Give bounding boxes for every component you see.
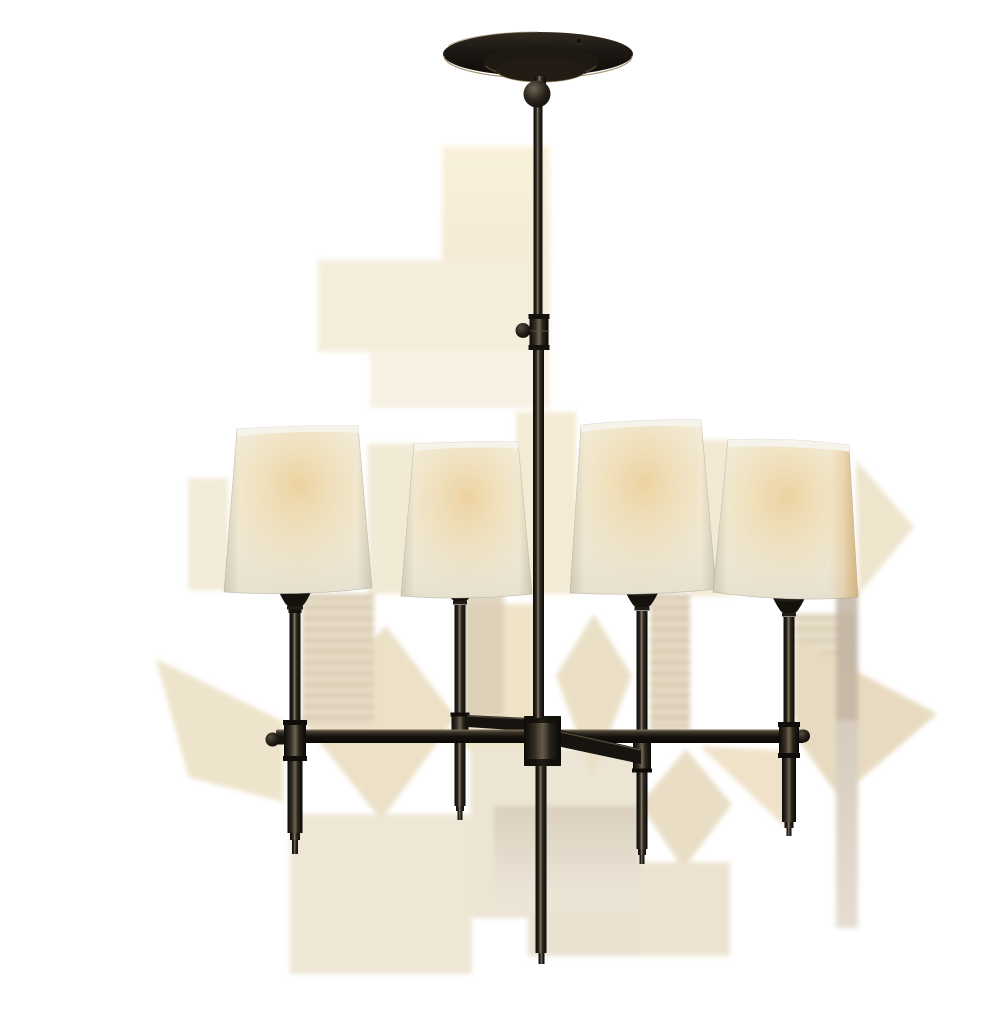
ceiling-canopy <box>443 32 633 108</box>
arm-collar <box>284 720 306 761</box>
cup-flange <box>782 613 796 617</box>
coupler-thumbscrew <box>516 323 531 338</box>
cup-flange <box>635 607 650 611</box>
coupler-flange <box>529 345 550 350</box>
chandelier <box>40 16 1000 1016</box>
thumbscrew-knob-left <box>266 733 280 747</box>
hub-flange <box>524 759 561 766</box>
canopy-screw <box>576 38 582 44</box>
candle-stem <box>784 617 795 723</box>
cup-flange <box>289 610 302 614</box>
arm-collar <box>779 722 799 758</box>
mid-stem <box>533 350 544 718</box>
finial-step <box>638 849 646 855</box>
shade-edge-shading <box>401 442 532 598</box>
lamp-shade-4 <box>713 439 858 599</box>
finial-drop <box>292 840 298 854</box>
center-hub <box>524 716 561 766</box>
collar-flange <box>632 769 652 773</box>
finial-drop <box>640 855 645 864</box>
collar-flange <box>778 722 800 727</box>
cup-flange <box>287 606 303 610</box>
candle-stem <box>455 605 466 806</box>
lamp-shade-3 <box>570 420 716 594</box>
finial-step <box>456 806 464 811</box>
shade-edge-shading <box>224 426 372 594</box>
collar-flange <box>451 713 470 717</box>
light-1-stem <box>283 609 307 854</box>
candle-stem <box>290 609 301 721</box>
finial-step <box>785 822 794 828</box>
finial-drop <box>458 811 463 820</box>
collar-flange <box>778 753 800 758</box>
product-image <box>40 16 1000 1016</box>
stem-coupler <box>516 314 550 350</box>
shade-amber-edge-glow <box>713 439 858 599</box>
arm-back-left <box>467 715 529 731</box>
light-2-stem <box>451 605 470 820</box>
cup-flange <box>453 601 467 605</box>
lamp-shade-1 <box>224 426 372 594</box>
bottom-finial-tip <box>539 953 545 964</box>
lower-sleeve <box>782 758 796 822</box>
collar-flange <box>283 720 307 725</box>
coupler-body <box>530 314 549 350</box>
lower-center-stem <box>536 766 547 953</box>
finial-drop <box>787 828 792 836</box>
hub-highlight <box>538 724 545 758</box>
collar-flange <box>283 756 307 761</box>
swivel-ball <box>524 81 551 108</box>
lamp-shade-2 <box>401 442 532 598</box>
shade-edge-shading <box>570 420 716 594</box>
upper-stem <box>534 106 543 316</box>
coupler-flange <box>529 314 550 319</box>
light-4-stem <box>778 617 800 836</box>
finial-step <box>290 833 300 840</box>
lower-sleeve <box>288 761 303 833</box>
